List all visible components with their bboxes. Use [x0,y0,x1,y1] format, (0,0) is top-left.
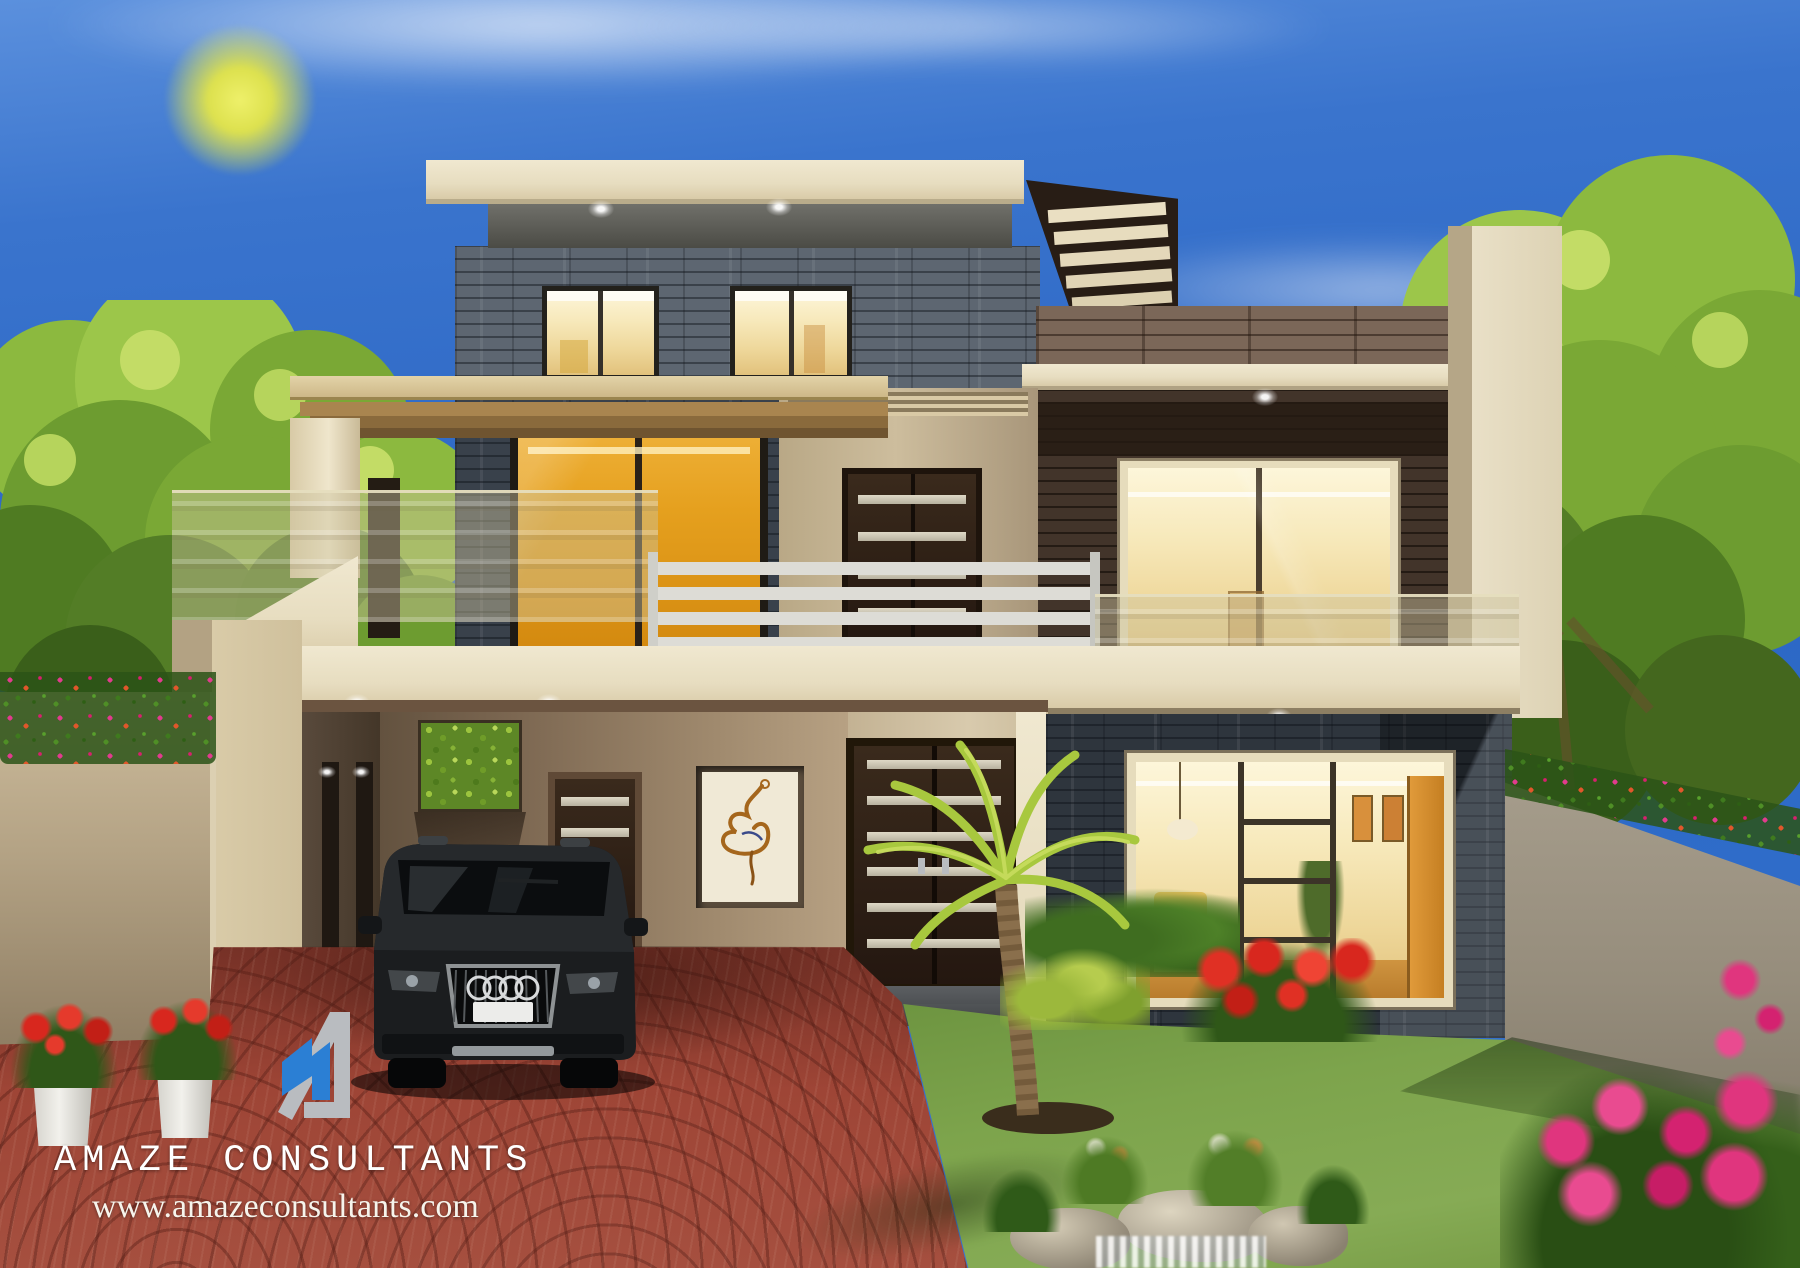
potted-flowers-red [134,998,240,1080]
corner-fern [1000,930,1150,1030]
pergola-beam [310,416,888,428]
slit-light [352,766,370,778]
grass-tuft [1296,1164,1370,1224]
plumeria-plant [1185,1128,1285,1206]
downlight [588,200,614,218]
bougainvillea-sprigs [1700,950,1800,1100]
dark-wood-band [1036,402,1466,456]
downlight [1252,388,1278,406]
website-url: www.amazeconsultants.com [92,1188,479,1226]
calligraphy-panel [702,772,798,902]
interior-lamp [1179,762,1181,823]
upper-window [547,291,654,375]
terrace-glass-balustrade [172,490,658,622]
waterfall [1096,1236,1266,1268]
left-wall-flowers [0,672,216,764]
architectural-render: AMAZE CONSULTANTS www.amazeconsultants.c… [0,0,1800,1268]
interior-painting [1352,795,1374,842]
company-logo-icon [274,996,368,1138]
plumeria-plant [1060,1134,1150,1204]
interior-painting [1382,795,1404,842]
pergola-beam [300,402,888,416]
downlight [766,198,792,216]
upper-window [735,291,847,375]
slit-window [322,762,339,966]
pergola-beam [320,428,888,438]
calligraphy-icon [702,772,798,902]
rock-garden [1000,1140,1350,1268]
slit-light [318,766,336,778]
grass-tuft [982,1168,1062,1232]
palm-tree [820,700,1150,1140]
upper-soffit [488,204,1012,248]
red-flower-bed [1180,938,1380,1042]
interior-door [1407,776,1444,998]
black-suv [348,820,658,1105]
interior-lamp-shade [1167,819,1198,840]
white-railing [652,552,1096,650]
pergola-beam [290,376,888,400]
potted-flowers-red [8,1002,120,1088]
hedge-opening [418,720,522,812]
roof-slab [426,160,1024,204]
sun [165,25,315,175]
balcony-roof-slab [1022,364,1468,390]
company-name: AMAZE CONSULTANTS [54,1140,533,1182]
railing-post [648,552,658,650]
window-mullion [1238,819,1337,825]
window-mullion [1238,878,1337,884]
wood-parapet-band [1036,306,1468,366]
